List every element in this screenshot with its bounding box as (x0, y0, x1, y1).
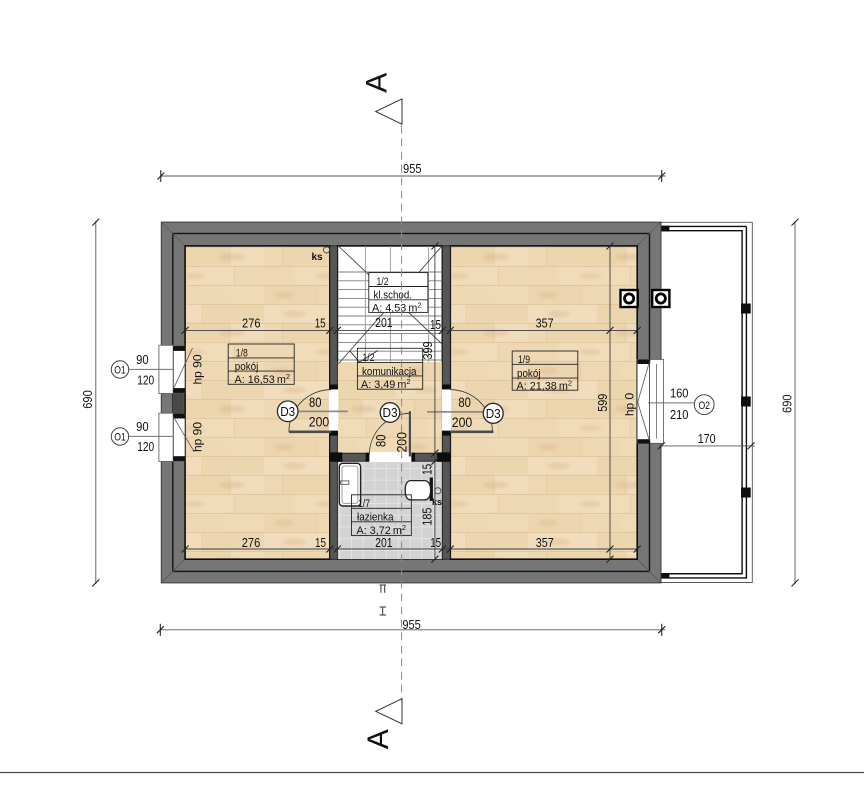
svg-text:201: 201 (375, 315, 393, 330)
svg-text:90: 90 (136, 352, 149, 367)
svg-text:D3: D3 (280, 404, 295, 419)
svg-text:kl.schod.: kl.schod. (374, 290, 413, 302)
svg-text:357: 357 (536, 535, 554, 550)
svg-text:A: A (362, 729, 395, 749)
svg-text:łazienka: łazienka (357, 512, 394, 524)
svg-text:hp 90: hp 90 (191, 422, 205, 452)
svg-text:690: 690 (80, 390, 95, 409)
svg-text:15: 15 (419, 464, 434, 475)
svg-text:80: 80 (309, 395, 322, 410)
svg-text:15: 15 (430, 317, 441, 332)
svg-text:200: 200 (395, 432, 410, 453)
svg-text:80: 80 (458, 395, 471, 410)
svg-text:A: 3,72 m2: A: 3,72 m2 (357, 523, 407, 537)
svg-text:955: 955 (402, 617, 421, 632)
svg-text:1/2: 1/2 (363, 352, 375, 364)
svg-text:80: 80 (373, 434, 388, 447)
svg-text:599: 599 (595, 394, 610, 412)
svg-text:ks: ks (311, 252, 323, 263)
svg-text:160: 160 (670, 386, 689, 401)
svg-text:120: 120 (137, 372, 154, 387)
svg-text:276: 276 (242, 316, 261, 331)
svg-text:hp 90: hp 90 (191, 354, 205, 384)
svg-text:955: 955 (403, 161, 422, 176)
svg-text:A: A (361, 73, 394, 93)
svg-text:15: 15 (315, 535, 326, 550)
svg-text:1/2: 1/2 (377, 276, 389, 288)
svg-text:15: 15 (315, 316, 326, 331)
svg-text:1/8: 1/8 (236, 348, 248, 360)
svg-text:1/9: 1/9 (518, 354, 530, 366)
svg-text:399: 399 (420, 342, 435, 360)
svg-text:O1: O1 (114, 432, 126, 444)
svg-text:201: 201 (375, 535, 393, 550)
svg-text:D3: D3 (486, 406, 501, 421)
svg-text:276: 276 (242, 535, 261, 550)
svg-text:pokój: pokój (517, 368, 541, 380)
svg-text:pokój: pokój (235, 361, 258, 373)
svg-text:O1: O1 (114, 365, 126, 377)
svg-text:357: 357 (536, 316, 554, 331)
svg-text:90: 90 (136, 419, 149, 434)
svg-text:1/7: 1/7 (358, 498, 370, 510)
svg-text:170: 170 (698, 431, 716, 446)
svg-text:D3: D3 (383, 405, 398, 420)
svg-text:hp 0: hp 0 (623, 392, 637, 416)
svg-text:120: 120 (137, 439, 154, 454)
svg-text:A: 4,53 m2: A: 4,53 m2 (372, 300, 422, 314)
svg-text:A: 3,49 m2: A: 3,49 m2 (361, 377, 411, 391)
svg-text:200: 200 (452, 415, 473, 430)
svg-text:690: 690 (779, 394, 794, 413)
svg-text:komunikacja: komunikacja (362, 366, 417, 378)
svg-text:A: 16,53 m2: A: 16,53 m2 (235, 372, 291, 386)
svg-text:200: 200 (309, 414, 330, 429)
svg-text:15: 15 (430, 535, 441, 550)
svg-text:ks: ks (432, 497, 442, 507)
svg-text:A: 21,38 m2: A: 21,38 m2 (517, 378, 573, 392)
svg-text:210: 210 (670, 407, 689, 422)
svg-text:185: 185 (420, 508, 435, 526)
svg-text:O2: O2 (698, 400, 710, 412)
